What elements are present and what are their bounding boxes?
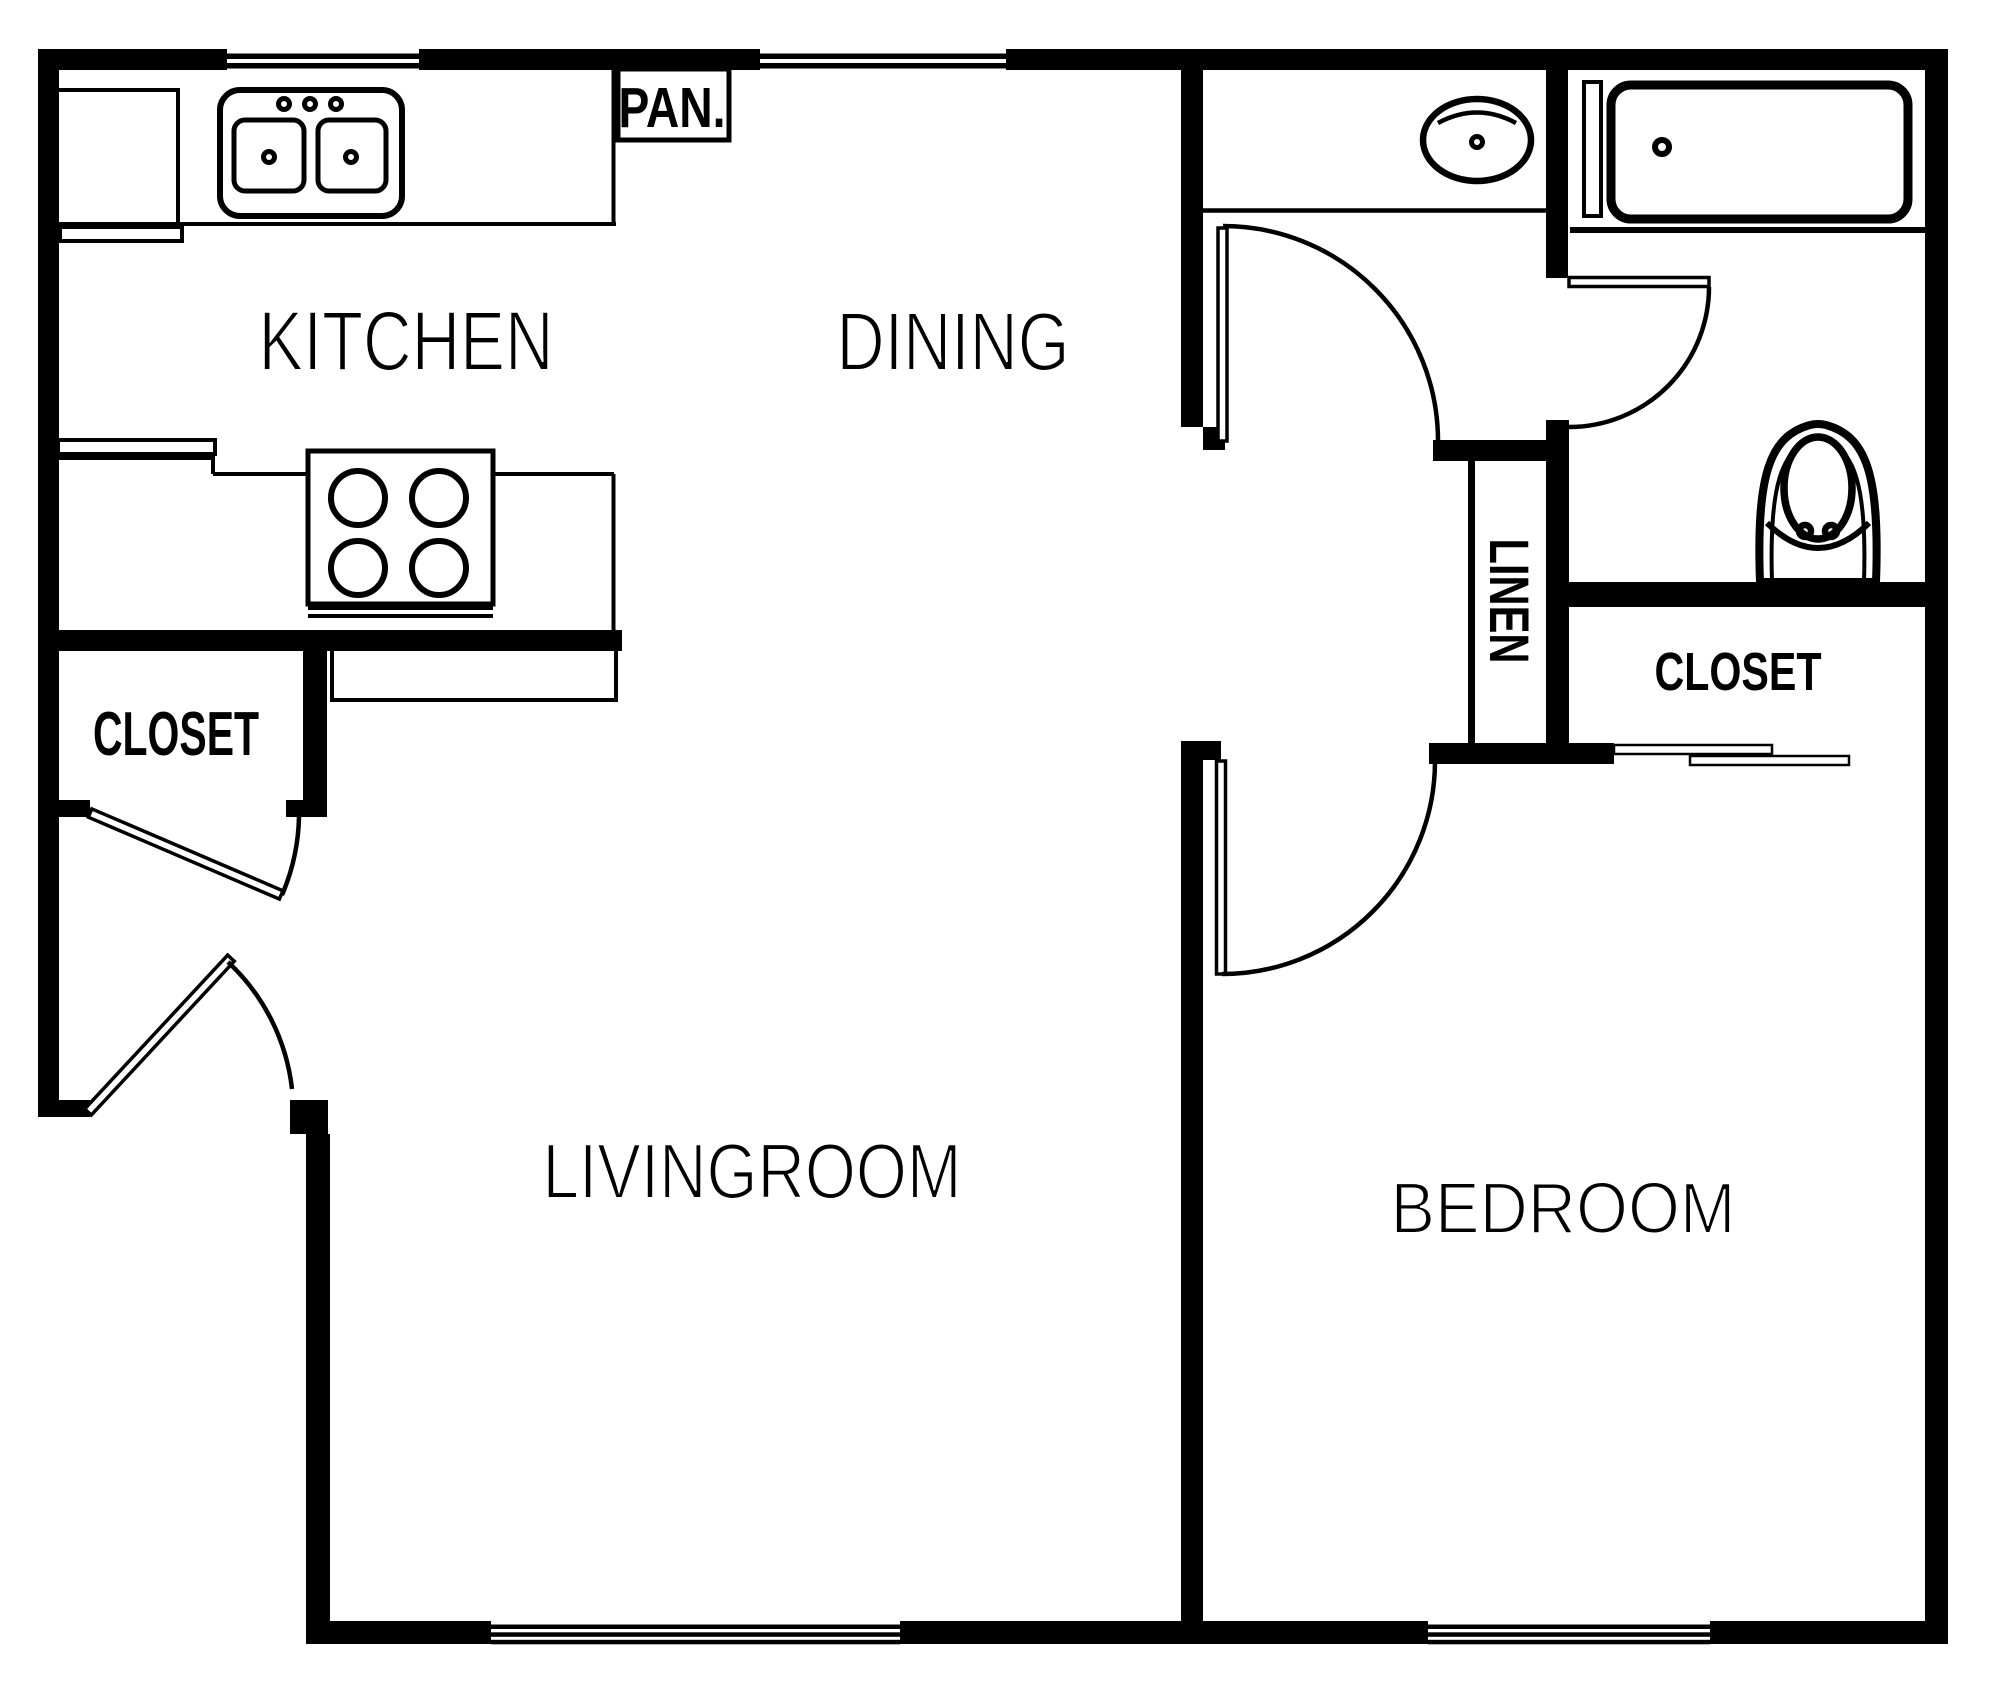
svg-text:LINEN: LINEN [1478, 539, 1541, 664]
svg-text:KITCHEN: KITCHEN [259, 294, 554, 388]
svg-text:CLOSET: CLOSET [93, 700, 259, 769]
svg-text:BEDROOM: BEDROOM [1391, 1169, 1736, 1249]
svg-text:DINING: DINING [837, 295, 1070, 388]
svg-text:LIVINGROOM: LIVINGROOM [543, 1127, 962, 1215]
svg-text:PAN.: PAN. [619, 76, 726, 140]
svg-text:CLOSET: CLOSET [1655, 642, 1822, 702]
